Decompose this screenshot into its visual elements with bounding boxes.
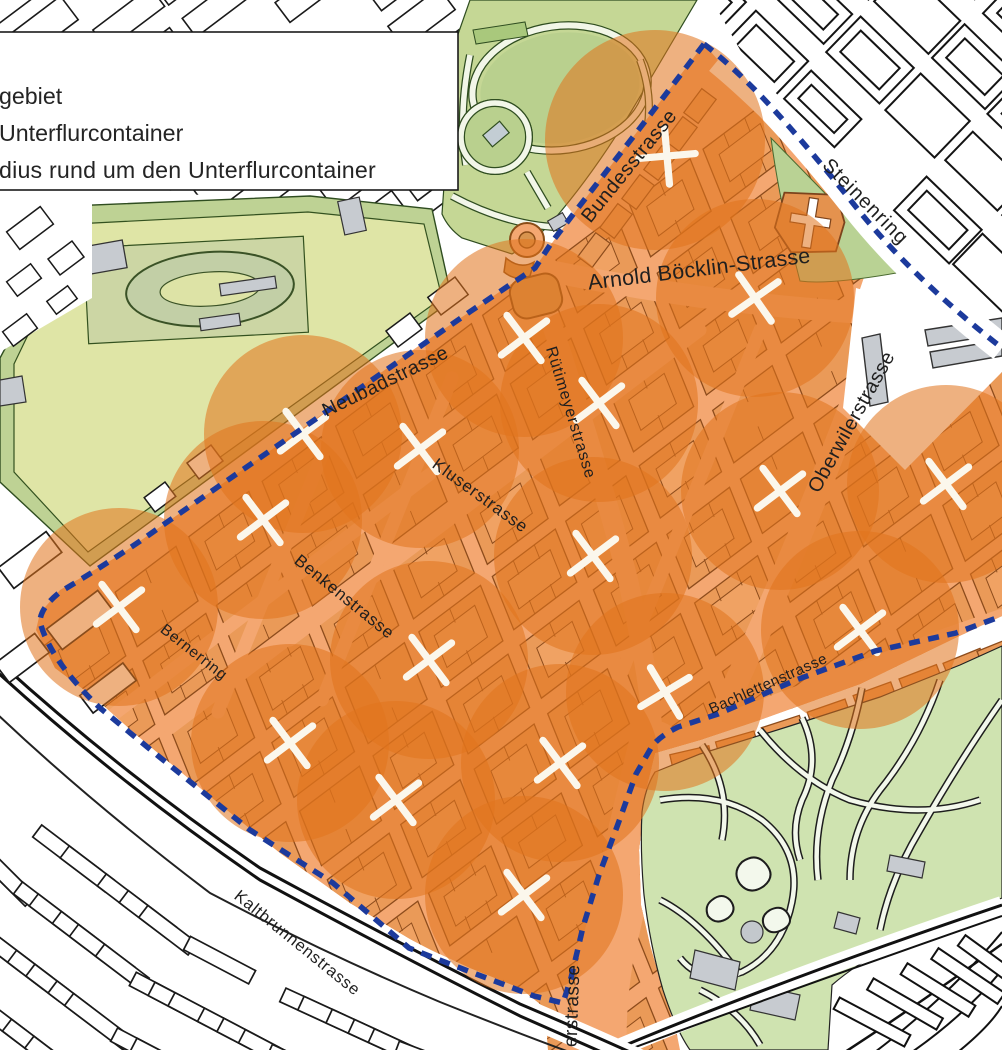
svg-text:erstrasse: erstrasse	[561, 964, 585, 1047]
svg-text:Unterflurcontainer: Unterflurcontainer	[0, 120, 184, 146]
svg-text:dius rund um den Unterflurcont: dius rund um den Unterflurcontainer	[0, 157, 376, 183]
svg-text:gebiet: gebiet	[0, 83, 63, 109]
